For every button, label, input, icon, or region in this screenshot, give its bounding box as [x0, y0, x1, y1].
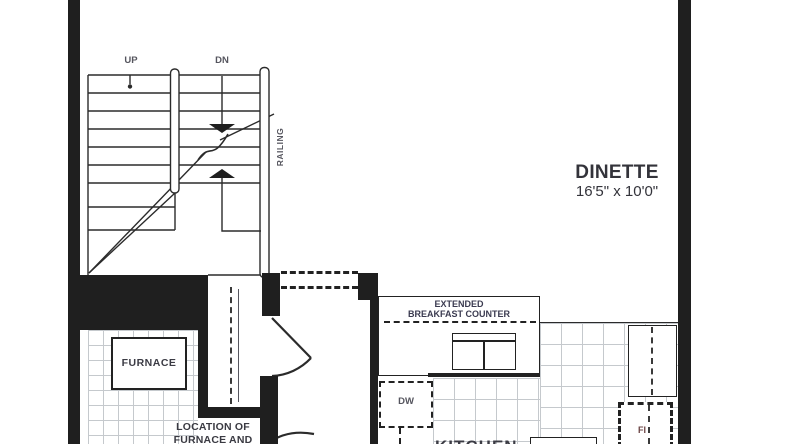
hall-wall-lower [260, 376, 278, 444]
right-railing-post [260, 68, 269, 278]
hall-door-leaf [272, 318, 311, 358]
appliance-center-dashed-line [651, 327, 653, 395]
left-outer-wall [68, 0, 80, 444]
furnace-label: FURNACE [111, 357, 187, 369]
kitchen-title-partial: KITCHEN [435, 437, 518, 444]
fridge-center-dashed-line [648, 405, 650, 444]
cabinet-dashed-line-continuation [399, 428, 401, 444]
furnace-location-note-line2: FURNACE AND [166, 434, 260, 444]
corridor-partition-line [238, 289, 239, 402]
hall-wall-upper-jamb [262, 273, 280, 316]
corridor-left-wall [198, 330, 208, 418]
kitchen-west-wall [370, 300, 378, 444]
counter-front-edge [428, 373, 540, 377]
center-railing-post [171, 69, 180, 193]
table-outline [530, 437, 597, 444]
archway-dashed-line-upper [281, 271, 358, 274]
up-flight-dot [128, 84, 132, 88]
furnace-location-note-line1: LOCATION OF [166, 421, 260, 434]
fridge-label: FI [638, 425, 646, 435]
counter-overhang-dashed-line [384, 321, 536, 323]
dn-label: DN [209, 55, 235, 66]
stair-break-line [89, 114, 274, 273]
floor-plan: FURNACE EXTENDED BREAKFAST COUNTER DW FI… [0, 0, 788, 444]
sink-divider [483, 341, 485, 370]
breakfast-counter-label-line2: BREAKFAST COUNTER [378, 309, 540, 319]
breakfast-counter-label-line1: EXTENDED [378, 299, 540, 309]
archway-dashed-line-lower [281, 286, 358, 289]
dinette-dimensions: 16'5" x 10'0" [557, 183, 677, 200]
fridge-dashed-box [618, 402, 673, 444]
dishwasher-label: DW [379, 396, 433, 407]
winder-line [89, 193, 175, 273]
stair-base-wall-mass [80, 275, 208, 330]
dinette-title: DINETTE [557, 162, 677, 184]
kitchen-entry-stub [358, 273, 378, 300]
corridor-bottom-wall [198, 407, 263, 418]
railing-label: RAILING [275, 117, 285, 177]
right-outer-wall [678, 0, 691, 444]
up-label: UP [118, 55, 144, 66]
up-arrowhead [209, 169, 235, 178]
hall-door-swing-arc [272, 358, 311, 376]
up-arrow-stem [222, 178, 261, 231]
corridor-dashed-line [230, 287, 232, 404]
